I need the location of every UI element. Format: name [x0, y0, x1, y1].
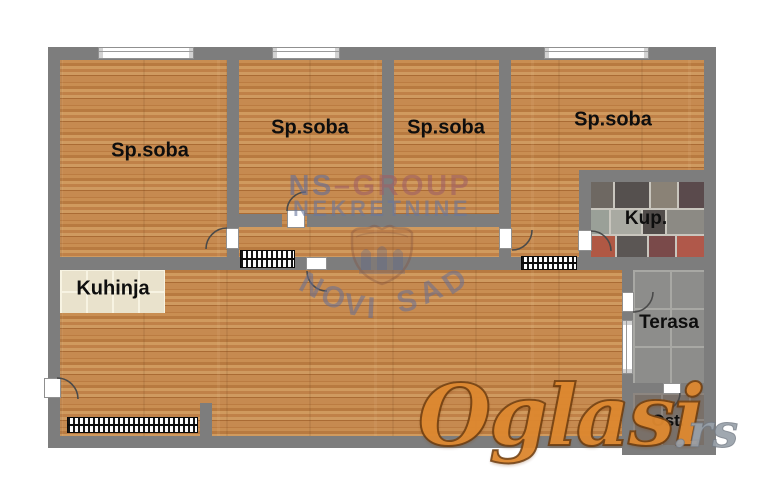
- wall-bathroom-top: [579, 170, 716, 182]
- window-bedroom-1: [98, 47, 194, 59]
- agency-shield-icon: [347, 222, 417, 288]
- radiator-hallway: [240, 250, 295, 268]
- window-bedroom-4: [544, 47, 649, 59]
- door-panel-terrace: [622, 292, 634, 312]
- door-panel-bedroom1: [226, 228, 239, 249]
- door-panel-bathroom: [578, 230, 592, 251]
- watermark-portal-name: Oglasi: [418, 374, 703, 458]
- wall-stub-bottom-left: [200, 403, 212, 448]
- door-panel-bedroom4: [499, 228, 512, 249]
- radiator-living-room: [67, 417, 198, 433]
- room-label-bedroom-1: Sp.soba: [111, 140, 189, 163]
- wall-terrace-left-upper: [622, 270, 633, 292]
- wall-hall-top-left: [239, 214, 282, 227]
- room-label-bedroom-3: Sp.soba: [407, 117, 485, 140]
- floor-plan: Sp.soba Sp.soba Sp.soba Sp.soba Kuhinja …: [0, 0, 763, 499]
- wall-outer-right: [704, 47, 716, 455]
- radiator-bedroom4: [521, 256, 577, 270]
- room-label-kitchen: Kuhinja: [76, 278, 149, 301]
- watermark-agency-subtitle: NEKRETNINE: [293, 196, 471, 222]
- watermark-city-letter: I: [366, 292, 376, 326]
- room-label-terrace: Terasa: [639, 312, 699, 334]
- room-label-bathroom: Kup.: [625, 208, 667, 230]
- wall-terrace-left-mid: [622, 312, 633, 320]
- window-bedroom-2: [272, 47, 340, 59]
- room-label-bedroom-2: Sp.soba: [271, 117, 349, 140]
- watermark-portal-suffix: .rs: [672, 408, 738, 454]
- door-panel-entry: [44, 378, 61, 398]
- room-label-bedroom-4: Sp.soba: [574, 109, 652, 132]
- wall-bedroom3-4-divider-upper: [499, 47, 511, 228]
- wall-bedroom1-divider-upper: [227, 47, 239, 228]
